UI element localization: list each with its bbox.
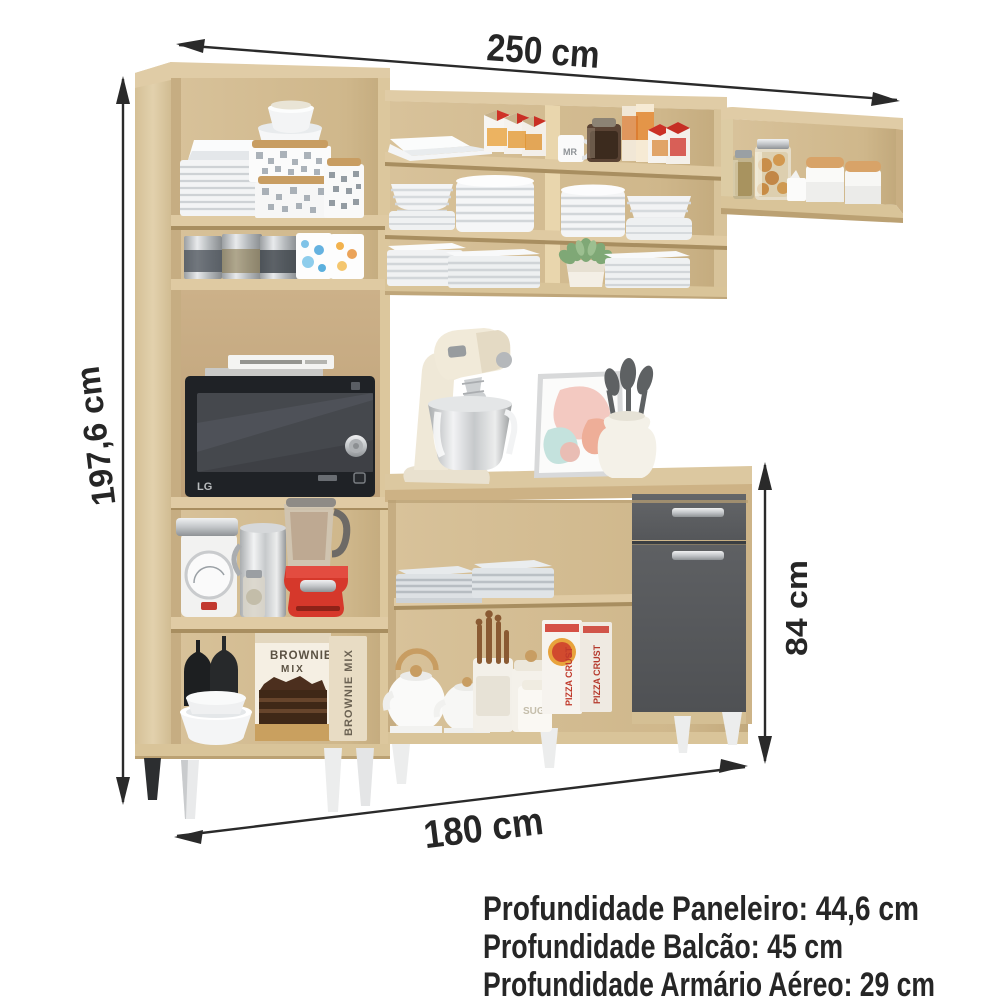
svg-text:MIX: MIX <box>281 664 305 675</box>
svg-text:BROWNIE MIX: BROWNIE MIX <box>343 649 355 736</box>
svg-text:250 cm: 250 cm <box>485 27 601 77</box>
svg-text:PIZZA CRUST: PIZZA CRUST <box>564 646 574 706</box>
svg-text:Profundidade Paneleiro: 44,6 c: Profundidade Paneleiro: 44,6 cm <box>483 890 919 928</box>
svg-text:PIZZA CRUST: PIZZA CRUST <box>592 644 602 704</box>
svg-text:LG: LG <box>197 481 212 493</box>
svg-text:BROWNIE: BROWNIE <box>270 650 333 662</box>
svg-text:Profundidade Armário Aéreo: 29: Profundidade Armário Aéreo: 29 cm <box>483 966 935 1001</box>
svg-text:MR: MR <box>563 147 577 157</box>
svg-text:84 cm: 84 cm <box>779 560 814 656</box>
svg-text:Profundidade Balcão: 45 cm: Profundidade Balcão: 45 cm <box>483 928 843 966</box>
